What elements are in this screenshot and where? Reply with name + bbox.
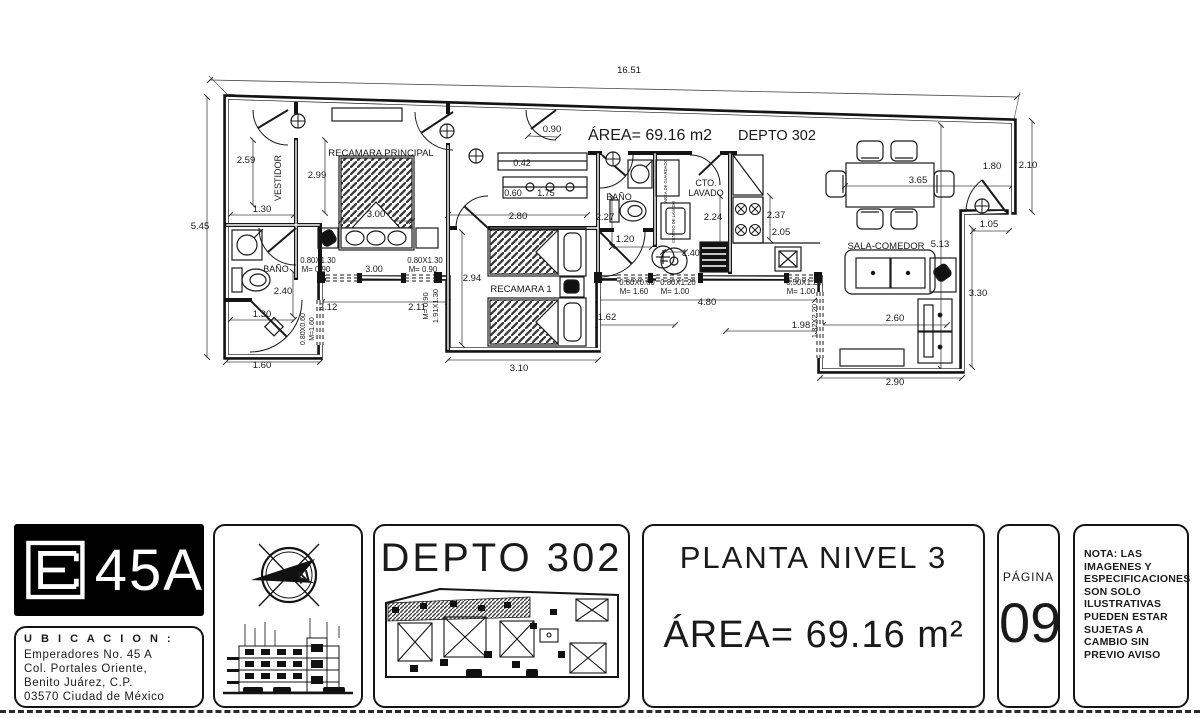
nota-line: SUJETAS A — [1084, 624, 1179, 637]
dimension-label: 3.10 — [510, 363, 529, 374]
dimension-label: 2.80 — [509, 211, 528, 222]
dimension-label: 2.90 — [886, 377, 905, 388]
pagina-label: PÁGINA — [999, 570, 1058, 584]
pagina-number: 09 — [999, 590, 1058, 655]
plan-area-title: ÁREA= 69.16 m2 — [588, 125, 712, 144]
room-label: RECAMARA PRINCIPAL — [328, 148, 433, 159]
room-label: BAÑO — [263, 264, 289, 274]
rug — [840, 349, 904, 366]
dimension-label: 2.99 — [308, 170, 327, 181]
logo-e-glyph — [24, 534, 87, 606]
dimension-label: 1.30 — [253, 204, 272, 215]
north-compass-icon: N — [251, 544, 319, 606]
ubicacion-box: U B I C A C I O N : Emperadores No. 45 A… — [14, 626, 204, 708]
dimension-label: 2.24 — [704, 212, 723, 223]
room-label: CENTRO DE LAVADO — [671, 200, 676, 243]
dimension-label: 1.82X2.20 — [810, 304, 819, 338]
room-label: LAVADO — [688, 188, 723, 198]
dimension-label: 2.94 — [463, 273, 482, 284]
ubicacion-title: U B I C A C I O N : — [24, 633, 194, 645]
depto-302-thumbnail — [380, 581, 624, 687]
building-elevation-thumbnail — [223, 618, 353, 693]
room-label: BAÑO — [606, 192, 632, 202]
nota-box: NOTA: LAS IMAGENES Y ESPECIFICACIONES SO… — [1073, 524, 1189, 708]
decor-tag-icon — [564, 280, 579, 293]
dimension-label: 0.80X1.30 — [300, 256, 336, 265]
dimension-label: 0.60 — [504, 188, 522, 198]
boiler — [700, 242, 728, 272]
nota-line: IMAGENES Y — [1084, 561, 1179, 574]
dimension-label: 0.80X1.20 — [660, 278, 696, 287]
dimension-label: 3.00 — [367, 209, 386, 220]
dimension-label: 1.75 — [537, 188, 555, 198]
dimension-label: M= 1.00 — [787, 287, 816, 296]
dimension-label: 0.80X0.60 — [300, 313, 307, 345]
depto-box: DEPTO 302 — [373, 524, 630, 708]
nota-line: PREVIO AVISO — [1084, 649, 1179, 662]
nota-line: NOTA: LAS — [1084, 548, 1179, 561]
dimension-label: 2.40 — [274, 286, 293, 297]
dimension-label: 0.50X1.20 — [786, 278, 822, 287]
dimension-label: 0.80X1.30 — [407, 256, 443, 265]
dimension-label: 1.80 — [983, 161, 1002, 172]
dimension-label: 2.10 — [1019, 160, 1038, 171]
dimension-label: 1.98 — [792, 320, 811, 331]
logo-text: 45A — [95, 537, 204, 604]
dimension-label: 1.62 — [598, 312, 617, 323]
room-label: VESTIDOR — [273, 155, 283, 202]
dimension-label: 2.27 — [596, 212, 615, 223]
area-value: ÁREA= 69.16 m² — [644, 614, 983, 657]
depto-title: DEPTO 302 — [375, 536, 628, 581]
dimension-label: 2.60 — [886, 313, 905, 324]
dimension-label: 1.60 — [253, 360, 272, 371]
planta-box: PLANTA NIVEL 3 ÁREA= 69.16 m² — [642, 524, 985, 708]
stove — [733, 197, 763, 243]
room-label: RECAMARA 1 — [490, 284, 551, 295]
room-label: CTO. — [695, 178, 716, 188]
dimension-label: 4.80 — [698, 297, 717, 308]
dining-chairs — [826, 141, 954, 229]
dimension-label: 1.30 — [253, 309, 272, 320]
dimension-label: 3.00 — [365, 264, 383, 274]
compass-elevation-box: N — [213, 524, 363, 708]
dimension-label: 3.65 — [909, 175, 928, 186]
furniture — [232, 108, 956, 366]
nota-line: PUEDEN ESTAR — [1084, 611, 1179, 624]
dimension-label: M=1.60 — [309, 317, 316, 341]
dimension-label: M= 1.00 — [661, 287, 690, 296]
dimension-label: 1.20 — [616, 234, 635, 245]
nota-line: ESPECIFICACIONES — [1084, 573, 1179, 586]
room-label: SALA-COMEDOR — [847, 241, 924, 252]
dimension-label: 0.90 — [543, 124, 562, 135]
planta-title: PLANTA NIVEL 3 — [644, 540, 983, 576]
dimension-label: M= 0.90 — [421, 292, 430, 319]
dimension-label: M= 1.60 — [620, 287, 649, 296]
dimension-lines — [207, 76, 1032, 378]
dimension-label: 1.91X1.30 — [431, 289, 440, 323]
tv-console — [918, 299, 952, 331]
logo-box: 45A — [14, 524, 204, 616]
pagina-box: PÁGINA 09 — [997, 524, 1060, 708]
ubicacion-line: Emperadores No. 45 A — [24, 648, 194, 662]
dimension-label: 5.13 — [931, 239, 950, 250]
floor-plan-drawing: ÁREA= 69.16 m2DEPTO 302VESTIDORRECAMARA … — [0, 0, 1200, 470]
ubicacion-line: Col. Portales Oriente, — [24, 662, 194, 676]
title-block: 45A U B I C A C I O N : Emperadores No. … — [0, 520, 1200, 718]
dimension-label: 3.30 — [969, 288, 988, 299]
plan-unit-title: DEPTO 302 — [738, 128, 816, 144]
dimension-label: 2.37 — [767, 210, 786, 221]
sheet-cut-line — [0, 710, 1200, 713]
dimension-label: 1.40 — [682, 248, 700, 258]
dimension-label: M= 0.90 — [302, 265, 331, 274]
nota-line: SON SOLO — [1084, 586, 1179, 599]
dimension-label: 0.42 — [513, 158, 531, 168]
nota-line: ILUSTRATIVAS — [1084, 598, 1179, 611]
dimension-label: 5.45 — [191, 221, 210, 232]
dimension-label: 1.05 — [980, 219, 999, 230]
dimension-label: 0.80X0.60 — [619, 278, 655, 287]
dimension-label: 2.12 — [319, 302, 338, 313]
room-label: AREA DE GUARDADO — [663, 159, 668, 203]
dimension-label: 2.59 — [237, 155, 256, 166]
nota-line: CAMBIO SIN — [1084, 636, 1179, 649]
drawing-sheet: ÁREA= 69.16 m2DEPTO 302VESTIDORRECAMARA … — [0, 0, 1200, 718]
console-top — [332, 108, 402, 121]
dimension-label: 16.51 — [617, 65, 641, 76]
dimension-label: M= 0.90 — [409, 265, 438, 274]
dimension-label: 2.05 — [772, 227, 791, 238]
ubicacion-line: Benito Juárez, C.P. — [24, 676, 194, 690]
ubicacion-line: 03570 Ciudad de México — [24, 690, 194, 704]
